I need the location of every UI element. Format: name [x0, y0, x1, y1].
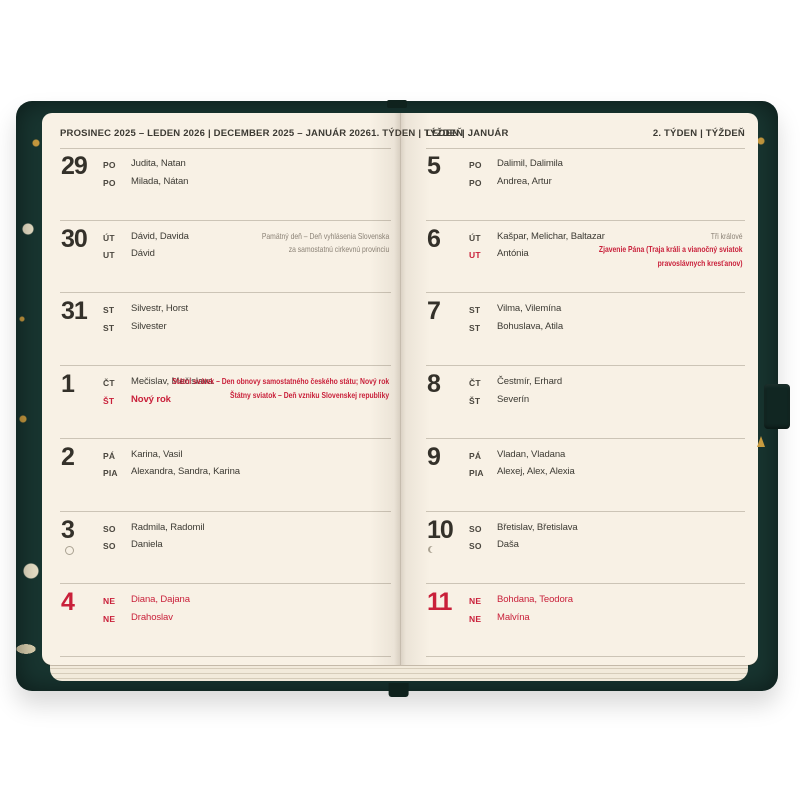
name-day-line: PODalimil, Dalimila — [469, 156, 563, 174]
day-abbrev-label: ČT — [469, 374, 497, 392]
day-abbrev-label: UT — [103, 246, 131, 264]
day-abbrev-label: PÁ — [103, 447, 131, 465]
day-row: 31STSilvestr, HorstSTSilvester — [60, 293, 391, 366]
name-day-line: UTDávid — [103, 246, 189, 264]
holiday-note: Pamätný deň – Deň vyhlásenia Slovenska — [262, 230, 389, 244]
day-abbrev-label: ÚT — [103, 229, 131, 247]
day-abbrev-label: ŠT — [469, 392, 497, 410]
day-abbrev-label: ÚT — [469, 229, 497, 247]
day-row: 29POJudita, NatanPOMilada, Nátan — [60, 148, 391, 221]
name-day-line: ČTČestmír, Erhard — [469, 374, 562, 392]
name-day-names: Dávid — [131, 246, 155, 264]
name-day-lines: PÁKarina, VasilPIAAlexandra, Sandra, Kar… — [103, 445, 240, 511]
day-row: 2PÁKarina, VasilPIAAlexandra, Sandra, Ka… — [60, 439, 391, 512]
day-abbrev-label: NE — [103, 592, 131, 610]
name-day-line: SOBřetislav, Břetislava — [469, 520, 578, 538]
day-abbrev-label: SO — [103, 537, 131, 555]
day-row: 7STVilma, VilemínaSTBohuslava, Atila — [426, 293, 745, 366]
name-day-lines: NEBohdana, TeodoraNEMalvína — [469, 590, 573, 656]
day-number-column: 10 — [426, 518, 469, 584]
day-number-column: 3 — [60, 518, 103, 584]
page-header: PROSINEC 2025 – LEDEN 2026 | DECEMBER 20… — [60, 118, 391, 149]
day-abbrev-label: PO — [469, 156, 497, 174]
day-abbrev-label: PO — [103, 156, 131, 174]
day-number: 31 — [61, 299, 103, 323]
day-number: 8 — [427, 372, 469, 396]
day-abbrev-label: ŠT — [103, 392, 131, 410]
day-row: 10SOBřetislav, BřetislavaSODaša — [426, 512, 745, 585]
page-header-months: PROSINEC 2025 – LEDEN 2026 | DECEMBER 20… — [60, 128, 371, 139]
name-day-lines: ÚTDávid, DavidaUTDávid — [103, 227, 189, 293]
name-day-names: Bohdana, Teodora — [497, 592, 573, 610]
day-row: 5PODalimil, DalimilaPOAndrea, Artur — [426, 148, 745, 221]
name-day-names: Silvester — [131, 319, 167, 337]
name-day-line: STSilvester — [103, 319, 188, 337]
day-number: 10 — [427, 518, 469, 542]
day-abbrev-label: SO — [469, 520, 497, 538]
name-day-line: POAndrea, Artur — [469, 174, 563, 192]
diary-pages: PROSINEC 2025 – LEDEN 2026 | DECEMBER 20… — [42, 113, 758, 665]
day-number-column: 5 — [426, 154, 469, 220]
day-number-column: 30 — [60, 227, 103, 293]
name-day-lines: STVilma, VilemínaSTBohuslava, Atila — [469, 299, 563, 365]
holiday-notes: Tři královéZjavenie Pána (Traja králi a … — [599, 230, 743, 271]
day-number: 5 — [427, 154, 469, 178]
day-number: 30 — [61, 227, 103, 251]
page-header-months: LEDEN | JANUÁR — [426, 128, 509, 139]
name-day-names: Severín — [497, 392, 529, 410]
name-day-names: Antónia — [497, 246, 529, 264]
day-number: 3 — [61, 518, 103, 542]
name-day-lines: SOBřetislav, BřetislavaSODaša — [469, 518, 578, 584]
page-edge-stack — [50, 663, 748, 681]
day-number-column: 11 — [426, 590, 469, 656]
diary-photo: PROSINEC 2025 – LEDEN 2026 | DECEMBER 20… — [0, 0, 800, 800]
holiday-note-red: pravoslávnych kresťanov) — [599, 257, 743, 271]
name-day-names: Andrea, Artur — [497, 174, 552, 192]
day-abbrev-label: ČT — [103, 374, 131, 392]
page-header: LEDEN | JANUÁR2. TÝDEN | TÝŽDEŇ — [426, 118, 745, 149]
name-day-line: POJudita, Natan — [103, 156, 188, 174]
day-number-column: 4 — [60, 590, 103, 656]
day-abbrev-label: PÁ — [469, 447, 497, 465]
name-day-line: NEDrahoslav — [103, 610, 190, 628]
day-rows: 29POJudita, NatanPOMilada, Nátan30ÚTDávi… — [60, 148, 391, 657]
diary-cover: PROSINEC 2025 – LEDEN 2026 | DECEMBER 20… — [16, 101, 778, 691]
name-day-lines: STSilvestr, HorstSTSilvester — [103, 299, 188, 365]
pen-loop — [764, 384, 790, 429]
day-number: 4 — [61, 590, 103, 614]
name-day-lines: ÚTKašpar, Melichar, BaltazarUTAntónia — [469, 227, 605, 293]
name-day-line: STBohuslava, Atila — [469, 319, 563, 337]
holiday-note-red: Zjavenie Pána (Traja králi a vianočný sv… — [599, 243, 743, 257]
name-day-line: PIAAlexandra, Sandra, Karina — [103, 464, 240, 482]
day-number-column: 31 — [60, 299, 103, 365]
name-day-lines: SORadmila, RadomilSODaniela — [103, 518, 204, 584]
name-day-names: Bohuslava, Atila — [497, 319, 563, 337]
name-day-names: Milada, Nátan — [131, 174, 188, 192]
day-number: 11 — [427, 590, 469, 614]
name-day-line: NEMalvína — [469, 610, 573, 628]
day-abbrev-label: NE — [103, 610, 131, 628]
day-abbrev-label: UT — [469, 246, 497, 264]
diary-page-left: PROSINEC 2025 – LEDEN 2026 | DECEMBER 20… — [42, 113, 400, 665]
name-day-lines: ČTČestmír, ErhardŠTSeverín — [469, 372, 562, 438]
name-day-names: Daša — [497, 537, 519, 555]
bookmark-ribbon — [389, 683, 409, 697]
day-number-column: 9 — [426, 445, 469, 511]
last-quarter-moon-icon — [430, 546, 437, 553]
day-row: 9PÁVladan, VladanaPIAAlexej, Alex, Alexi… — [426, 439, 745, 512]
holiday-note: za samostatnú cirkevnú provinciu — [262, 243, 389, 257]
name-day-line: PIAAlexej, Alex, Alexia — [469, 464, 575, 482]
name-day-line: PÁVladan, Vladana — [469, 447, 575, 465]
name-day-names: Vilma, Vilemína — [497, 301, 561, 319]
day-abbrev-label: ST — [469, 301, 497, 319]
day-abbrev-label: ST — [103, 319, 131, 337]
name-day-names: Judita, Natan — [131, 156, 186, 174]
name-day-line: STVilma, Vilemína — [469, 301, 563, 319]
day-number: 7 — [427, 299, 469, 323]
name-day-line: SORadmila, Radomil — [103, 520, 204, 538]
name-day-line: STSilvestr, Horst — [103, 301, 188, 319]
day-number-column: 1 — [60, 372, 103, 438]
holiday-note: Tři králové — [599, 230, 743, 244]
day-abbrev-label: PO — [469, 174, 497, 192]
day-number: 9 — [427, 445, 469, 469]
page-content-right: LEDEN | JANUÁR2. TÝDEN | TÝŽDEŇ5PODalimi… — [426, 118, 745, 657]
day-row: 4NEDiana, DajanaNEDrahoslav — [60, 584, 391, 657]
day-number: 2 — [61, 445, 103, 469]
name-day-line: PÁKarina, Vasil — [103, 447, 240, 465]
name-day-names: Drahoslav — [131, 610, 173, 628]
name-day-lines: PÁVladan, VladanaPIAAlexej, Alex, Alexia — [469, 445, 575, 511]
name-day-names: Diana, Dajana — [131, 592, 190, 610]
name-day-names: Daniela — [131, 537, 163, 555]
day-row: 6ÚTKašpar, Melichar, BaltazarUTAntóniaTř… — [426, 221, 745, 294]
name-day-names: Dávid, Davida — [131, 229, 189, 247]
day-row: 1ČTMečislav, MečislavaŠTNový rokStátní s… — [60, 366, 391, 439]
name-day-lines: POJudita, NatanPOMilada, Nátan — [103, 154, 188, 220]
name-day-line: NEDiana, Dajana — [103, 592, 190, 610]
name-day-line: POMilada, Nátan — [103, 174, 188, 192]
name-day-line: UTAntónia — [469, 246, 605, 264]
name-day-line: NEBohdana, Teodora — [469, 592, 573, 610]
day-abbrev-label: SO — [103, 520, 131, 538]
holiday-notes: Pamätný deň – Deň vyhlásenia Slovenskaza… — [262, 230, 389, 257]
day-number: 6 — [427, 227, 469, 251]
name-day-line: ŠTSeverín — [469, 392, 562, 410]
day-number-column: 29 — [60, 154, 103, 220]
name-day-names: Alexandra, Sandra, Karina — [131, 464, 240, 482]
day-number: 29 — [61, 154, 103, 178]
name-day-names: Nový rok — [131, 392, 171, 410]
day-abbrev-label: NE — [469, 610, 497, 628]
day-row: 8ČTČestmír, ErhardŠTSeverín — [426, 366, 745, 439]
day-abbrev-label: ST — [469, 319, 497, 337]
day-abbrev-label: ST — [103, 301, 131, 319]
name-day-lines: PODalimil, DalimilaPOAndrea, Artur — [469, 154, 563, 220]
name-day-line: ÚTKašpar, Melichar, Baltazar — [469, 229, 605, 247]
page-content-left: PROSINEC 2025 – LEDEN 2026 | DECEMBER 20… — [60, 118, 391, 657]
day-abbrev-label: PO — [103, 174, 131, 192]
name-day-names: Malvína — [497, 610, 530, 628]
day-row: 11NEBohdana, TeodoraNEMalvína — [426, 584, 745, 657]
name-day-names: Kašpar, Melichar, Baltazar — [497, 229, 605, 247]
day-number-column: 2 — [60, 445, 103, 511]
name-day-names: Břetislav, Břetislava — [497, 520, 578, 538]
name-day-lines: NEDiana, DajanaNEDrahoslav — [103, 590, 190, 656]
name-day-line: ÚTDávid, Davida — [103, 229, 189, 247]
full-moon-icon — [65, 546, 74, 555]
day-abbrev-label: SO — [469, 537, 497, 555]
gold-leaf-accent-icon — [757, 436, 765, 447]
day-number-column: 7 — [426, 299, 469, 365]
name-day-line: SODaša — [469, 537, 578, 555]
name-day-names: Čestmír, Erhard — [497, 374, 562, 392]
spine-top-detail — [387, 100, 407, 108]
diary-page-right: LEDEN | JANUÁR2. TÝDEN | TÝŽDEŇ5PODalimi… — [400, 113, 758, 665]
day-rows: 5PODalimil, DalimilaPOAndrea, Artur6ÚTKa… — [426, 148, 745, 657]
day-number-column: 8 — [426, 372, 469, 438]
day-number: 1 — [61, 372, 103, 396]
day-row: 30ÚTDávid, DavidaUTDávidPamätný deň – De… — [60, 221, 391, 294]
holiday-note-red: Státní svátek – Den obnovy samostatného … — [172, 375, 389, 389]
name-day-names: Karina, Vasil — [131, 447, 182, 465]
holiday-note-red: Štátny sviatok – Deň vzniku Slovenskej r… — [172, 389, 389, 403]
day-number-column: 6 — [426, 227, 469, 293]
name-day-names: Alexej, Alex, Alexia — [497, 464, 575, 482]
name-day-names: Radmila, Radomil — [131, 520, 204, 538]
day-row: 3SORadmila, RadomilSODaniela — [60, 512, 391, 585]
day-abbrev-label: NE — [469, 592, 497, 610]
day-abbrev-label: PIA — [469, 464, 497, 482]
name-day-names: Dalimil, Dalimila — [497, 156, 563, 174]
name-day-names: Vladan, Vladana — [497, 447, 565, 465]
name-day-line: SODaniela — [103, 537, 204, 555]
page-header-week: 2. TÝDEN | TÝŽDEŇ — [653, 128, 745, 139]
day-abbrev-label: PIA — [103, 464, 131, 482]
holiday-notes: Státní svátek – Den obnovy samostatného … — [172, 375, 389, 402]
name-day-names: Silvestr, Horst — [131, 301, 188, 319]
